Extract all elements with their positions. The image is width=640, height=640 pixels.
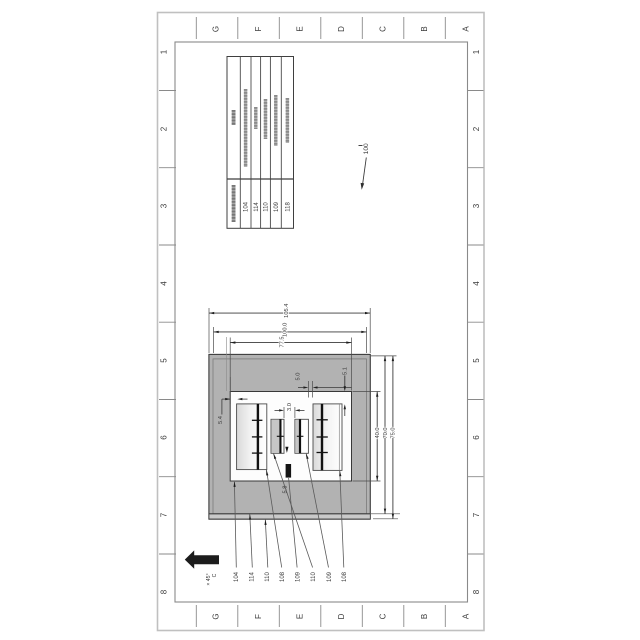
svg-text:1: 1 <box>472 49 481 54</box>
svg-text:5.4: 5.4 <box>218 416 224 424</box>
svg-text:1: 1 <box>160 49 169 54</box>
svg-text:104: 104 <box>234 571 240 582</box>
svg-text:C: C <box>379 26 388 32</box>
svg-text:6: 6 <box>160 435 169 440</box>
svg-text:6: 6 <box>472 435 481 440</box>
svg-text:110: 110 <box>264 202 270 212</box>
svg-text:2: 2 <box>472 126 481 131</box>
svg-text:7: 7 <box>472 512 481 517</box>
svg-text:4: 4 <box>472 281 481 286</box>
svg-text:3.0: 3.0 <box>287 403 293 411</box>
svg-text:4: 4 <box>160 281 169 286</box>
svg-text:A: A <box>462 26 471 32</box>
svg-text:108: 108 <box>342 571 348 582</box>
svg-text:108: 108 <box>280 571 286 582</box>
svg-text:5.1: 5.1 <box>343 367 349 375</box>
svg-text:E: E <box>296 26 305 31</box>
svg-text:104: 104 <box>244 201 250 212</box>
svg-text:D: D <box>337 26 346 32</box>
svg-text:40.0: 40.0 <box>375 427 381 438</box>
svg-text:F: F <box>254 614 263 619</box>
svg-text:D: D <box>337 613 346 619</box>
svg-text:100: 100 <box>363 143 370 154</box>
svg-text:A: A <box>462 613 471 619</box>
svg-text:114: 114 <box>254 202 260 212</box>
svg-text:B: B <box>420 26 429 31</box>
svg-text:2: 2 <box>160 126 169 131</box>
svg-text:75.0: 75.0 <box>391 427 397 438</box>
svg-text:7: 7 <box>160 512 169 517</box>
svg-text:C: C <box>212 573 218 577</box>
svg-text:C: C <box>379 613 388 619</box>
svg-text:70.0: 70.0 <box>383 427 389 438</box>
svg-text:× 45°: × 45° <box>206 573 212 585</box>
svg-text:G: G <box>212 613 221 619</box>
svg-text:100.0: 100.0 <box>282 323 288 337</box>
svg-text:B: B <box>420 614 429 619</box>
svg-text:3: 3 <box>472 203 481 208</box>
svg-text:109: 109 <box>295 571 301 582</box>
svg-text:F: F <box>254 26 263 31</box>
svg-text:G: G <box>212 26 221 32</box>
svg-text:114: 114 <box>249 572 255 582</box>
svg-text:5: 5 <box>472 358 481 363</box>
svg-text:105.4: 105.4 <box>284 304 290 318</box>
svg-text:109: 109 <box>274 201 280 212</box>
svg-text:8: 8 <box>472 589 481 594</box>
svg-text:5.0: 5.0 <box>296 373 302 381</box>
svg-text:E: E <box>296 614 305 619</box>
svg-text:109: 109 <box>327 571 333 582</box>
svg-text:110: 110 <box>265 572 271 582</box>
svg-text:77.5: 77.5 <box>279 336 285 347</box>
svg-text:110: 110 <box>311 572 317 582</box>
svg-text:8: 8 <box>160 589 169 594</box>
svg-text:5: 5 <box>160 358 169 363</box>
svg-text:118: 118 <box>285 202 291 212</box>
svg-text:3: 3 <box>160 203 169 208</box>
